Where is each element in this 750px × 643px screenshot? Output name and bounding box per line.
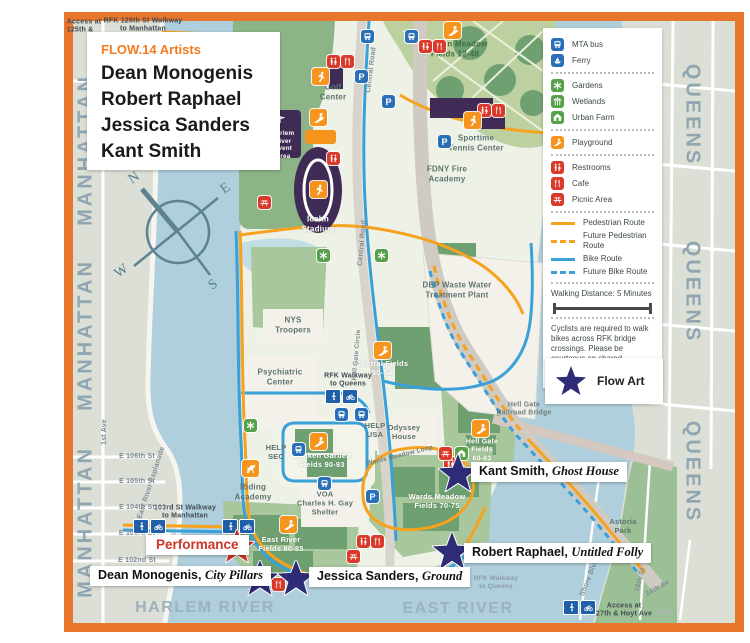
jessica-sanders-label: Jessica Sanders, Ground [309,567,470,587]
bus-stop-icon [361,30,374,43]
golf-icon [312,68,329,85]
legend-label: Ferry [572,56,591,66]
gardens-icon [375,249,388,262]
playground-icon [551,136,564,149]
restrooms-icon [327,152,340,165]
picnic-icon [551,193,564,206]
legend-divider [551,211,654,213]
cafe-icon [433,40,446,53]
compass-rose: N E S W [112,168,244,300]
performance-label: Performance [146,535,249,555]
artwork-title: Ghost House [552,464,619,478]
artist-name-kant: Kant Smith [101,139,280,165]
nys-troopers-label: NYS Troopers [275,315,311,334]
help-sec-label: HELP SEC [266,443,287,461]
parking-icon: P [366,490,379,503]
legend-label: Cafe [572,179,589,189]
compass-w: W [112,261,132,281]
map-legend: MTA bus Ferry Gardens Wetlands Urban Far… [543,28,662,388]
bike-icon [342,389,358,404]
legend-label: Restrooms [572,163,611,173]
harlem-river-label: HARLEM RIVER [135,599,275,617]
legend-item-ferry: Ferry [551,54,654,67]
first-ave-label: 1st Ave [101,419,109,445]
bus-icon [551,38,564,51]
performance-text: Performance [156,537,239,552]
parking-icon: P [382,95,395,108]
gardens-icon [244,419,257,432]
odyssey-house-label: Odyssey House [388,423,421,441]
flow-art-legend: Flow Art [545,358,663,404]
ferry-icon [551,54,564,67]
access-27-label: Access at 27th & Hoyt Ave [596,603,652,620]
legend-divider [551,317,654,319]
tennis-icon [464,112,481,129]
riding-academy-label: Riding Academy [235,482,272,501]
compass-e: E [218,180,234,197]
scale-bar [553,303,652,312]
hell-gate-bridge-label: Hell Gate Railroad Bridge [496,402,551,419]
legend-label: Picnic Area [572,195,612,205]
compass-s: S [206,277,221,294]
artist-name-jessica: Jessica Sanders [101,113,280,139]
artwork-title: Untitled Folly [571,545,643,559]
playground-icon [374,342,391,359]
artwork-title: Ground [422,569,462,583]
bus-stop-icon [335,408,348,421]
help-usa-label: HELP USA [365,421,386,439]
sportime-label: Sportime Tennis Center [448,133,503,152]
central-fields-label: Central Fields 50-54 [356,359,408,377]
bus-stop-icon [292,443,305,456]
walkway-access-sign [563,600,596,615]
picnic-area-icon [258,196,271,209]
compass-n: N [126,169,143,187]
playground-icon [310,109,327,126]
fdny-label: FDNY Fire Academy [427,164,467,183]
future-bike-route-swatch [551,271,575,274]
legend-item-picnic: Picnic Area [551,193,654,206]
astoria-park-label: Astoria Park [609,517,636,535]
bus-stop-icon [405,30,418,43]
playground-icon [280,516,297,533]
legend-route-future-pedestrian: Future Pedestrian Route [551,231,654,251]
kant-smith-label: Kant Smith, Ghost House [471,462,627,482]
east-river-label: EAST RIVER [402,600,513,618]
runner-icon [310,181,327,198]
cafe-icon [341,55,354,68]
e102-label: E 102nd St [118,557,156,565]
bike-icon [580,600,596,615]
park-map-page: N E S W MANHATTAN MANHATTAN MANHATTAN QU… [0,0,750,643]
pedestrian-icon [133,519,149,534]
legend-divider [551,129,654,131]
parking-icon: P [438,135,451,148]
walking-distance-label: Walking Distance: 5 Minutes [551,289,654,299]
icahn-stadium-label: Icahn Stadium [302,214,335,233]
dean-monogenis-label: Dean Monogenis, City Pillars [90,566,271,586]
bike-route-swatch [551,258,575,261]
legend-item-mta-bus: MTA bus [551,38,654,51]
voa-shelter-label: VOA Charles H. Gay Shelter [297,490,353,517]
queens-label: QUEENS [681,241,704,343]
psychiatric-center-label: Psychiatric Center [258,367,303,386]
artwork-title: City Pillars [205,568,263,582]
playground-icon [444,22,461,39]
wetlands-icon [551,95,564,108]
bus-stop-icon [318,477,331,490]
pedestrian-icon [563,600,579,615]
picnic-area-icon [347,550,360,563]
legend-label: Pedestrian Route [583,218,645,228]
flow-title: FLOW.14 Artists [101,42,280,57]
bus-stop-icon [355,408,368,421]
legend-label: Playground [572,138,612,148]
legend-route-future-bike: Future Bike Route [551,267,654,277]
e104-label: E 104th St [119,504,155,512]
legend-route-pedestrian: Pedestrian Route [551,218,654,228]
legend-label: Future Pedestrian Route [583,231,654,251]
urban-farm-icon [551,111,564,124]
flow-art-star-icon [555,366,587,396]
cafe-icon [371,535,384,548]
restrooms-icon [419,40,432,53]
dep-plant-label: DEP Waste Water Treatment Plant [423,280,492,299]
playground-icon [472,420,489,437]
cafe-icon [492,104,505,117]
golf-center-label: Golf Center [320,82,347,101]
legend-label: Urban Farm [572,113,615,123]
playground-icon [310,433,327,450]
restrooms-icon [327,55,340,68]
legend-label: MTA bus [572,40,603,50]
walkway-access-sign [133,519,166,534]
gardens-icon [317,249,330,262]
wards-meadow-fields-label: Wards Meadow Fields 70-75 [409,492,466,510]
legend-item-urban-farm: Urban Farm [551,111,654,124]
artist-name: Jessica Sanders, [317,569,418,583]
manhattan-label: MANHATTAN [75,259,98,411]
legend-route-bike: Bike Route [551,254,654,264]
legend-label: Gardens [572,81,603,91]
flow-art-label: Flow Art [597,374,645,388]
gardens-icon [551,79,564,92]
parking-icon: P [355,70,368,83]
artist-name-robert: Robert Raphael [101,87,280,113]
legend-item-cafe: Cafe [551,177,654,190]
walkway-access-sign [325,389,358,404]
rfk-walkway-queens-south-label: RFK Walkway to Queens [474,575,519,591]
pedestrian-route-swatch [551,222,575,225]
legend-label: Future Bike Route [583,267,647,277]
pedestrian-icon [325,389,341,404]
legend-divider [551,282,654,284]
artist-name-dean: Dean Monogenis [101,61,280,87]
artist-name: Dean Monogenis, [98,568,201,582]
legend-divider [551,154,654,156]
map-code-label: 9003 [658,609,673,617]
legend-item-gardens: Gardens [551,79,654,92]
restrooms-icon [357,535,370,548]
robert-raphael-label: Robert Raphael, Untitled Folly [464,543,651,563]
bike-icon [150,519,166,534]
cafe-icon [551,177,564,190]
horse-riding-icon [242,460,259,477]
legend-item-playground: Playground [551,136,654,149]
legend-item-wetlands: Wetlands [551,95,654,108]
legend-divider [551,72,654,74]
legend-label: Bike Route [583,254,622,264]
artist-name: Robert Raphael, [472,545,568,559]
e106-label: E 106th St [119,453,155,461]
queens-label: QUEENS [681,421,704,523]
future-pedestrian-route-swatch [551,240,575,243]
restrooms-icon [551,161,564,174]
legend-item-restrooms: Restrooms [551,161,654,174]
artists-header-box: FLOW.14 Artists Dean Monogenis Robert Ra… [87,32,280,170]
artist-name: Kant Smith, [479,464,548,478]
legend-label: Wetlands [572,97,605,107]
east-river-fields-label: East River Fields 80-85 [258,535,303,553]
queens-label: QUEENS [681,64,704,166]
